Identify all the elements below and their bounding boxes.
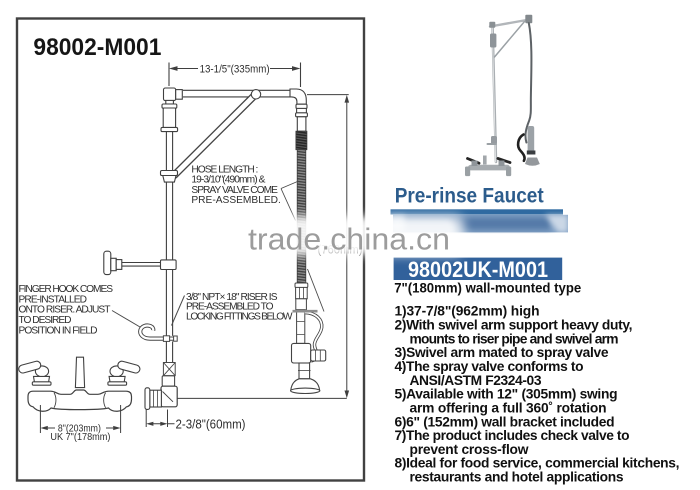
svg-text:PRE-ASSEMBLED.: PRE-ASSEMBLED. xyxy=(191,195,280,206)
svg-text:98002-M001: 98002-M001 xyxy=(33,34,161,61)
svg-text:Pre-rinse Faucet: Pre-rinse Faucet xyxy=(395,184,544,207)
svg-text:6)6" (152mm) wall bracket incl: 6)6" (152mm) wall bracket included xyxy=(395,414,615,429)
svg-text:ANSI/ASTM F2324-03: ANSI/ASTM F2324-03 xyxy=(410,373,542,388)
svg-text:trade.china.cn: trade.china.cn xyxy=(248,223,450,257)
svg-text:13-1/5"(335mm): 13-1/5"(335mm) xyxy=(200,64,270,76)
svg-text:1)37-7/8"(962mm) high: 1)37-7/8"(962mm) high xyxy=(395,304,540,319)
svg-text:19-3/10"(490mm) &: 19-3/10"(490mm) & xyxy=(191,175,265,186)
svg-text:LOCKING FITTINGS BELOW: LOCKING FITTINGS BELOW xyxy=(186,311,293,322)
svg-text:3)Swivel arm mated to spray va: 3)Swivel arm mated to spray valve xyxy=(395,345,609,360)
svg-text:2-3/8"(60mm): 2-3/8"(60mm) xyxy=(176,417,246,432)
svg-text:ONTO RISER. ADJUST: ONTO RISER. ADJUST xyxy=(19,305,111,316)
svg-text:7)The product includes check v: 7)The product includes check valve to xyxy=(395,428,630,443)
svg-text:mounts to riser pipe and swive: mounts to riser pipe and swivel arm xyxy=(410,331,619,346)
svg-text:PRE-INSTALLED: PRE-INSTALLED xyxy=(19,294,88,305)
svg-text:arm offering a full 360˚ rotat: arm offering a full 360˚ rotation xyxy=(410,401,607,416)
svg-text:POSITION IN FIELD: POSITION IN FIELD xyxy=(19,326,98,337)
svg-text:4)The spray valve conforms to: 4)The spray valve conforms to xyxy=(395,359,584,374)
svg-text:2)With swivel arm support heav: 2)With swivel arm support heavy duty, xyxy=(395,318,633,333)
svg-text:restaurants and hotel applicat: restaurants and hotel applications xyxy=(410,470,624,485)
svg-text:8)Ideal for food service, comm: 8)Ideal for food service, commercial kit… xyxy=(395,456,680,471)
svg-text:UK 7"(178mm): UK 7"(178mm) xyxy=(50,432,110,443)
svg-text:5)Available with 12" (305mm) s: 5)Available with 12" (305mm) swing xyxy=(395,387,618,402)
svg-text:98002UK-M001: 98002UK-M001 xyxy=(408,257,548,282)
svg-text:TO DESIRED: TO DESIRED xyxy=(19,315,72,326)
svg-text:prevent cross-flow: prevent cross-flow xyxy=(410,442,529,457)
svg-text:7"(180mm) wall-mounted type: 7"(180mm) wall-mounted type xyxy=(394,280,581,295)
